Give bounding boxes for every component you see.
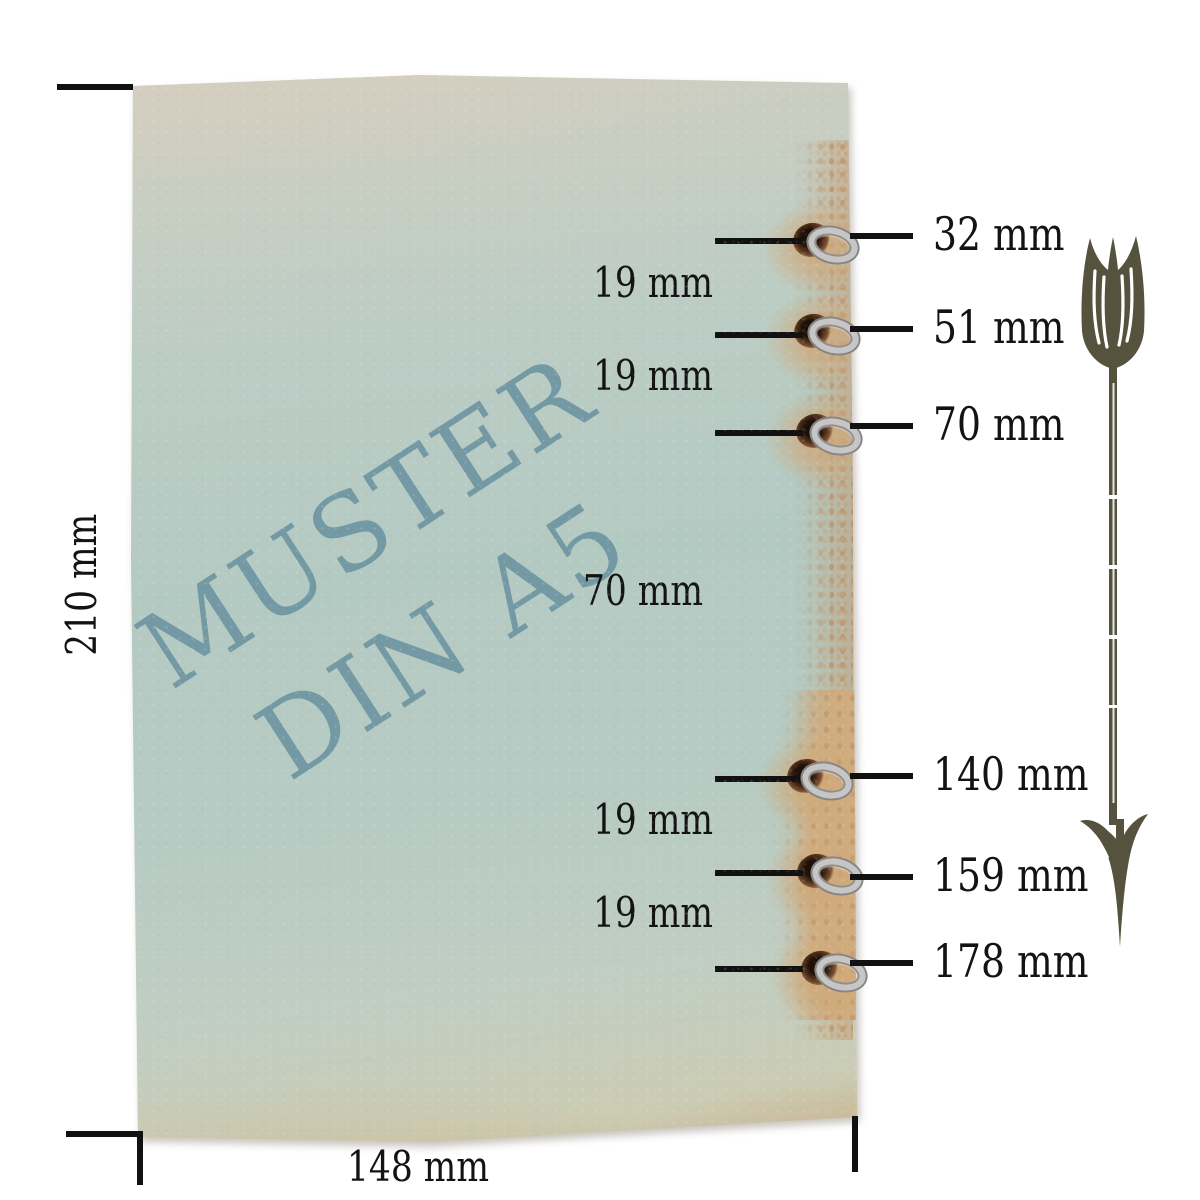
hole-pointer-line xyxy=(715,238,803,244)
hole-pointer-line xyxy=(715,430,803,436)
hole-position-label: 159 mm xyxy=(933,852,1089,898)
sample-paper: MUSTER DIN A5 19 mm 19 xyxy=(0,0,1200,1200)
hole-pointer-line xyxy=(715,332,803,338)
watermark-line1: MUSTER xyxy=(81,302,653,742)
product-dimension-diagram: MUSTER DIN A5 19 mm 19 xyxy=(0,0,1200,1200)
hole-position-label: 51 mm xyxy=(933,304,1065,350)
width-label: 148 mm xyxy=(347,1146,489,1188)
width-tick-right-vertical xyxy=(852,1116,858,1172)
height-tick-top xyxy=(57,84,133,90)
label-leader-line xyxy=(850,874,913,880)
paper-shadow-wrap: MUSTER DIN A5 19 mm 19 xyxy=(0,0,1200,1200)
label-leader-line xyxy=(850,326,913,332)
hole-position-label: 178 mm xyxy=(933,938,1089,984)
watermark-text: MUSTER DIN A5 xyxy=(81,302,730,861)
hole-pointer-line xyxy=(715,776,803,782)
hole-pointer-line xyxy=(715,966,803,972)
width-tick-left-vertical xyxy=(137,1131,143,1185)
hole-position-label: 70 mm xyxy=(933,401,1065,447)
hole-gap-label: 19 mm xyxy=(593,262,713,304)
watermark-line2: DIN A5 xyxy=(158,421,730,861)
down-arrow-icon xyxy=(1073,233,1153,953)
hole-position-label: 140 mm xyxy=(933,751,1089,797)
hole-gap-label: 70 mm xyxy=(583,570,703,612)
label-leader-line xyxy=(850,960,913,966)
hole-pointer-line xyxy=(715,870,803,876)
hole-gap-label: 19 mm xyxy=(593,355,713,397)
label-leader-line xyxy=(850,233,913,239)
label-leader-line xyxy=(850,423,913,429)
label-leader-line xyxy=(850,773,913,779)
hole-gap-label: 19 mm xyxy=(593,799,713,841)
hole-gap-label: 19 mm xyxy=(593,892,713,934)
height-label: 210 mm xyxy=(60,516,104,655)
hole-position-label: 32 mm xyxy=(933,211,1065,257)
width-tick-left-horizontal xyxy=(66,1131,140,1137)
rust-edge-texture xyxy=(793,140,853,1040)
